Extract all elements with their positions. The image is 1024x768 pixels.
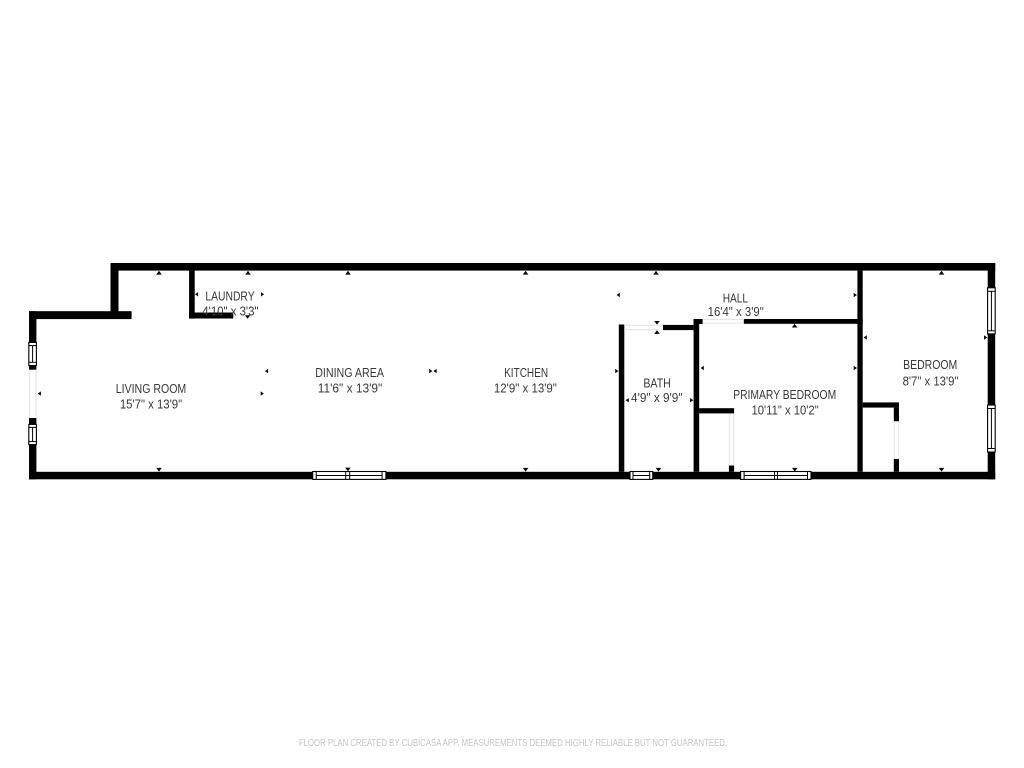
- svg-text:4'10" x 3'3": 4'10" x 3'3": [202, 303, 258, 318]
- svg-text:FLOOR PLAN CREATED BY CUBICASA: FLOOR PLAN CREATED BY CUBICASA APP. MEAS…: [299, 738, 727, 749]
- svg-text:LAUNDRY: LAUNDRY: [205, 288, 254, 303]
- svg-text:15'7" x 13'9": 15'7" x 13'9": [120, 397, 183, 412]
- svg-text:PRIMARY BEDROOM: PRIMARY BEDROOM: [733, 387, 836, 402]
- svg-text:BEDROOM: BEDROOM: [903, 357, 957, 372]
- svg-text:11'6" x 13'9": 11'6" x 13'9": [318, 380, 383, 395]
- svg-text:8'7" x 13'9": 8'7" x 13'9": [903, 373, 959, 388]
- svg-text:DINING AREA: DINING AREA: [315, 365, 384, 380]
- svg-text:4'9" x 9'9": 4'9" x 9'9": [631, 390, 683, 405]
- svg-text:16'4" x 3'9": 16'4" x 3'9": [708, 304, 764, 319]
- svg-text:12'9" x 13'9": 12'9" x 13'9": [494, 380, 557, 395]
- svg-text:10'11" x 10'2": 10'11" x 10'2": [752, 403, 819, 418]
- svg-text:KITCHEN: KITCHEN: [504, 365, 548, 380]
- svg-text:LIVING ROOM: LIVING ROOM: [116, 381, 187, 396]
- svg-text:BATH: BATH: [643, 376, 671, 391]
